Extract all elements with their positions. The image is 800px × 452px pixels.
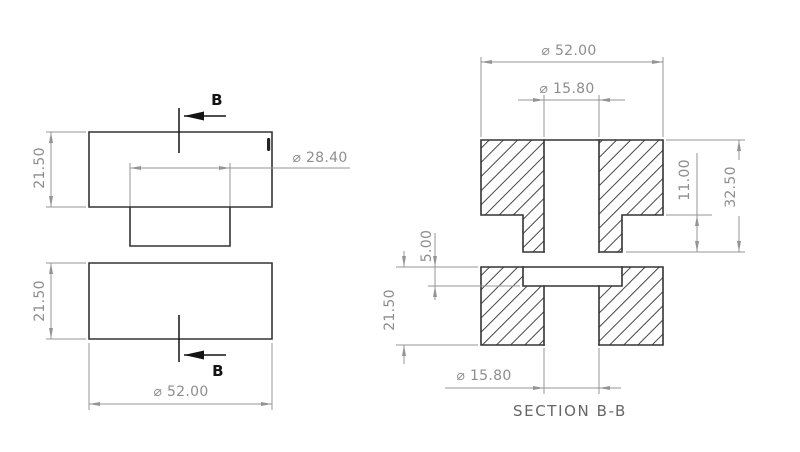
ink-artifact-mark: [267, 138, 270, 151]
dim-section-plate-height-text: 21.50: [382, 289, 398, 331]
dim-section-total-height-text: 32.50: [723, 166, 739, 208]
dim-front-boss-diameter-text: ⌀ 28.40: [292, 150, 347, 166]
dim-front-outer-diameter-text: ⌀ 52.00: [153, 384, 208, 400]
engineering-drawing: 21.50 ⌀ 28.40 21.50 ⌀ 52.00: [0, 0, 800, 452]
dim-section-recess-depth-text: 5.00: [419, 230, 435, 262]
dim-front-top-height-text: 21.50: [32, 147, 48, 189]
dim-section-outer-diameter-text: ⌀ 52.00: [541, 43, 596, 59]
dim-front-bottom-height-text: 21.50: [32, 280, 48, 322]
drawing-sheet: 21.50 ⌀ 28.40 21.50 ⌀ 52.00: [0, 0, 800, 452]
section-title: SECTION B-B: [513, 402, 627, 420]
dim-section-hole-diameter-top-text: ⌀ 15.80: [539, 81, 594, 97]
cutting-plane-label-bottom: B: [212, 362, 224, 380]
dim-section-boss-height-text: 11.00: [677, 159, 693, 201]
dim-section-hole-diameter-bottom-text: ⌀ 15.80: [456, 368, 511, 384]
sheet-background: [0, 0, 800, 452]
cutting-plane-label-top: B: [211, 91, 223, 109]
